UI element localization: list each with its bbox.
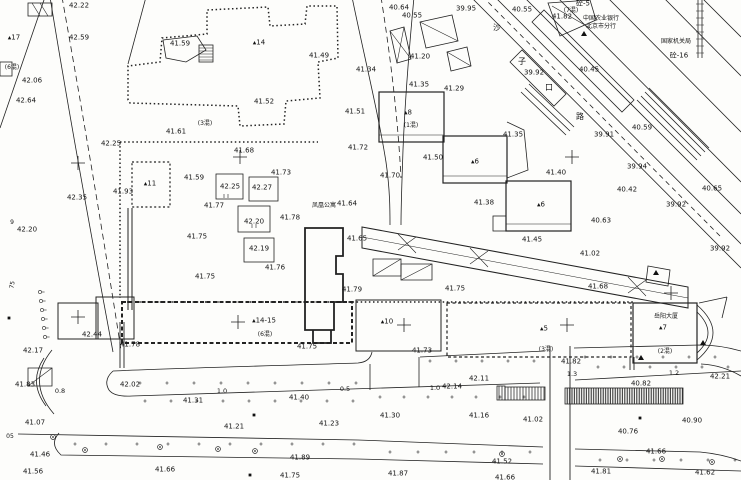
- building-number-label: ▴8: [404, 110, 412, 117]
- elevation-label: 40.55: [512, 7, 532, 14]
- elevation-label: 42.59: [69, 35, 89, 42]
- elevation-label: 42.25: [101, 141, 121, 148]
- building-number-label: ▴10: [381, 319, 393, 326]
- elevation-label: 41.49: [309, 53, 329, 60]
- building-number-label: 砼-16: [670, 53, 688, 60]
- elevation-label: 40.42: [617, 187, 637, 194]
- street-name-char: 口: [545, 84, 553, 92]
- elevation-label: 41.62: [695, 470, 715, 477]
- elevation-label: 41.35: [409, 82, 429, 89]
- building-number-label: ▴14-15: [252, 318, 276, 325]
- elevation-label: 41.78: [120, 342, 140, 349]
- elevation-label: 42.19: [249, 246, 269, 253]
- elevation-label: 42.21: [710, 374, 730, 381]
- elevation-label: 40.63: [591, 218, 611, 225]
- elevation-label: 41.83: [15, 382, 35, 389]
- street-name-char: 路: [576, 113, 584, 121]
- map-labels-layer: 42.2242.5941.5942.0642.6442.2541.6141.68…: [0, 0, 741, 480]
- construction-note: (7混): [564, 8, 579, 14]
- elevation-label: 40.64: [389, 5, 409, 12]
- elevation-label: 42.02: [120, 382, 140, 389]
- construction-note: (3混): [539, 347, 554, 353]
- elevation-label: 41.56: [23, 469, 43, 476]
- elevation-label: 40.82: [631, 381, 651, 388]
- elevation-label: 42.06: [22, 78, 42, 85]
- building-number-label: ▴5: [540, 326, 548, 333]
- distance-label: 1.3: [567, 371, 577, 378]
- place-name-label: 中国农业银行: [583, 16, 619, 22]
- elevation-label: 41.73: [412, 348, 432, 355]
- elevation-label: 41.16: [469, 413, 489, 420]
- elevation-label: 41.52: [492, 459, 512, 466]
- elevation-label: 41.46: [30, 452, 50, 459]
- place-name-label: 岳阳大厦: [654, 314, 678, 320]
- elevation-label: 40.65: [702, 186, 722, 193]
- elevation-label: 40.59: [632, 125, 652, 132]
- elevation-label: 39.92: [524, 70, 544, 77]
- distance-label: 1.0: [217, 388, 227, 395]
- elevation-label: 41.68: [588, 284, 608, 291]
- elevation-label: 42.14: [442, 384, 462, 391]
- elevation-label: 41.52: [254, 99, 274, 106]
- misc-label: 75: [9, 281, 16, 290]
- elevation-label: 41.93: [113, 189, 133, 196]
- elevation-label: 41.65: [347, 236, 367, 243]
- elevation-label: 41.30: [380, 413, 400, 420]
- survey-map-canvas: 42.2242.5941.5942.0642.6442.2541.6141.68…: [0, 0, 741, 480]
- elevation-label: 41.61: [166, 129, 186, 136]
- elevation-label: 41.70: [380, 173, 400, 180]
- elevation-label: 41.75: [297, 344, 317, 351]
- elevation-label: 39.92: [710, 246, 730, 253]
- elevation-label: 41.76: [265, 265, 285, 272]
- building-number-label: ▴14: [253, 40, 265, 47]
- elevation-label: 41.64: [337, 201, 357, 208]
- elevation-label: 41.66: [646, 449, 666, 456]
- elevation-label: 42.27: [252, 185, 272, 192]
- elevation-label: 39.91: [594, 132, 614, 139]
- building-number-label: ▴11: [144, 181, 156, 188]
- elevation-label: 42.17: [23, 348, 43, 355]
- construction-note: (1混): [404, 123, 419, 129]
- place-name-label: 国家机关局: [661, 39, 691, 45]
- elevation-label: 40.55: [402, 13, 422, 20]
- elevation-label: 41.02: [523, 417, 543, 424]
- construction-note: (6混): [5, 65, 20, 71]
- elevation-label: 39.95: [456, 6, 476, 13]
- elevation-label: 41.02: [580, 251, 600, 258]
- elevation-label: 41.68: [234, 148, 254, 155]
- elevation-label: 41.59: [184, 175, 204, 182]
- elevation-label: 41.82: [561, 359, 581, 366]
- building-number-label: ▴6: [471, 159, 479, 166]
- elevation-label: 42.44: [82, 332, 102, 339]
- elevation-label: 41.75: [280, 473, 300, 480]
- elevation-label: 39.94: [627, 164, 647, 171]
- elevation-label: 41.79: [342, 287, 362, 294]
- distance-label: 0.8: [55, 388, 65, 395]
- elevation-label: 42.25: [220, 184, 240, 191]
- elevation-label: 41.87: [388, 471, 408, 478]
- elevation-label: 41.20: [410, 54, 430, 61]
- elevation-label: 41.78: [280, 215, 300, 222]
- elevation-label: 41.50: [423, 155, 443, 162]
- distance-label: 1.2: [669, 370, 679, 377]
- elevation-label: 41.23: [319, 421, 339, 428]
- street-name-char: 沙: [493, 24, 501, 32]
- elevation-label: 41.66: [155, 467, 175, 474]
- elevation-label: 41.89: [290, 455, 310, 462]
- elevation-label: 41.73: [271, 170, 291, 177]
- street-name-char: 子: [518, 58, 526, 66]
- elevation-label: 41.59: [170, 41, 190, 48]
- elevation-label: 42.20: [244, 219, 264, 226]
- elevation-label: 41.07: [25, 420, 45, 427]
- building-number-label: ▴17: [8, 35, 20, 42]
- elevation-label: 42.35: [67, 195, 87, 202]
- elevation-label: 41.35: [503, 132, 523, 139]
- elevation-label: 41.82: [552, 14, 572, 21]
- elevation-label: 42.20: [17, 227, 37, 234]
- misc-label: 9: [10, 220, 14, 226]
- elevation-label: 40.90: [682, 418, 702, 425]
- elevation-label: 41.38: [474, 200, 494, 207]
- elevation-label: 42.64: [16, 98, 36, 105]
- elevation-label: 41.75: [187, 234, 207, 241]
- elevation-label: 41.40: [546, 170, 566, 177]
- place-name-label: 北京市分行: [586, 24, 616, 30]
- distance-label: 0.5: [340, 386, 350, 393]
- elevation-label: 41.77: [204, 203, 224, 210]
- building-number-label: ▴7: [659, 325, 667, 332]
- building-number-label: ▴6: [537, 202, 545, 209]
- elevation-label: 41.34: [356, 67, 376, 74]
- elevation-label: 41.51: [345, 109, 365, 116]
- elevation-label: 40.76: [618, 429, 638, 436]
- elevation-label: 41.31: [183, 398, 203, 405]
- elevation-label: 41.72: [348, 145, 368, 152]
- elevation-label: 39.92: [666, 202, 686, 209]
- elevation-label: 41.21: [224, 424, 244, 431]
- construction-note: (6混): [258, 332, 273, 338]
- elevation-label: 41.75: [445, 286, 465, 293]
- elevation-label: 41.45: [522, 237, 542, 244]
- construction-note: (3混): [198, 121, 213, 127]
- elevation-label: 41.66: [495, 475, 515, 480]
- place-name-label: 凤凰公寓: [312, 203, 336, 209]
- elevation-label: 40.45: [579, 67, 599, 74]
- elevation-label: 41.29: [444, 86, 464, 93]
- elevation-label: 42.11: [469, 376, 489, 383]
- misc-label: 05: [6, 434, 14, 440]
- elevation-label: 41.40: [289, 395, 309, 402]
- elevation-label: 42.22: [69, 3, 89, 10]
- elevation-label: 41.75: [195, 274, 215, 281]
- construction-note: (2混): [658, 349, 673, 355]
- distance-label: 1.0: [430, 385, 440, 392]
- elevation-label: 41.81: [591, 469, 611, 476]
